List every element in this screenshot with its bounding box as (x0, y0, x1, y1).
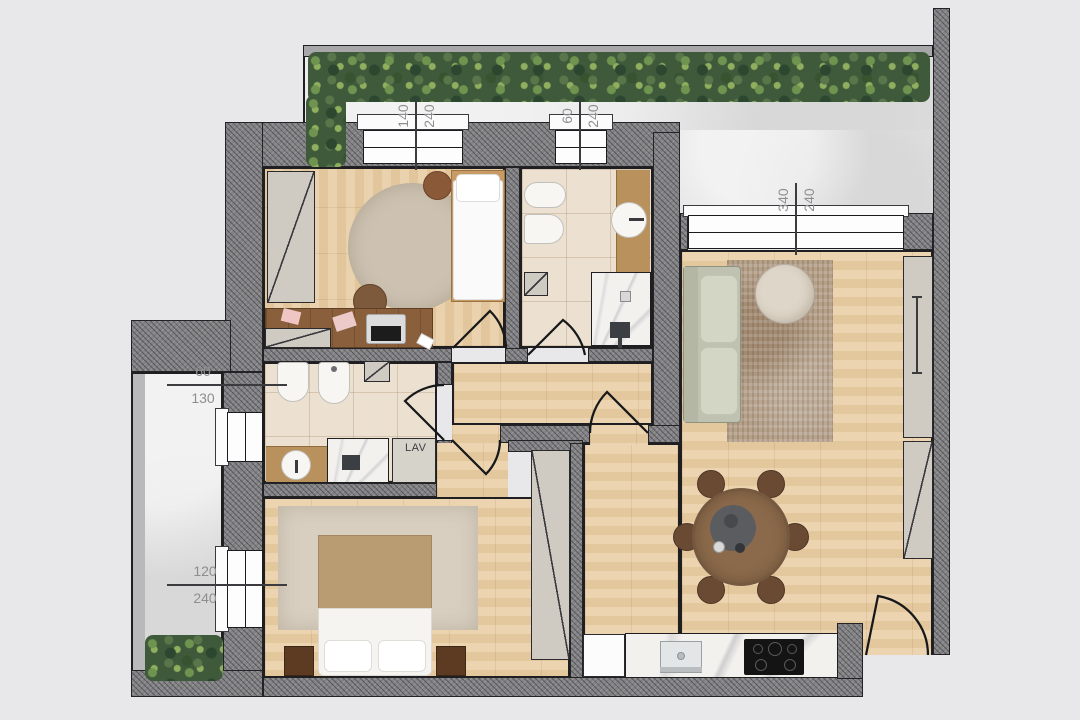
wall-bath2-east-a (437, 362, 452, 385)
kitchen-sink-drain (677, 652, 685, 660)
shower1-fixture (610, 322, 630, 338)
dim-master-width: 120 (185, 563, 225, 579)
dining-cup-3 (724, 514, 738, 528)
dim-bath2-height: 130 (183, 390, 223, 406)
bedroom1-desk-cabinet (265, 328, 331, 348)
burner-3 (787, 644, 797, 654)
master-wardrobe (531, 450, 570, 660)
sofa-cushion-top (700, 275, 738, 343)
kitchen-tall-cabinet (583, 634, 625, 677)
dim-living-height: 240 (801, 180, 817, 220)
burner-4 (755, 659, 767, 671)
window-bath2 (227, 412, 263, 462)
kitchen-sink-grate (660, 667, 702, 672)
corridor-floor-b (437, 443, 508, 499)
entry-closet (903, 441, 933, 559)
wall-entrance-jog (837, 623, 863, 679)
dim-master-height: 240 (185, 590, 225, 606)
wall-bottom (263, 676, 863, 697)
entrance-recess-mask (863, 655, 953, 700)
dim-line-master (167, 584, 287, 586)
kitchen-counter (625, 633, 838, 678)
balcony-edge-strip (133, 374, 145, 670)
bathroom2-cabinet (364, 361, 390, 382)
master-nightstand-right (436, 646, 466, 676)
burner-5 (784, 659, 796, 671)
bathroom2-toilet (277, 362, 309, 402)
bathroom1-cabinet (524, 272, 548, 296)
master-bed-pillow-right (378, 640, 426, 672)
dim-living-width: 340 (775, 180, 791, 220)
burner-1 (753, 644, 763, 654)
wall-hall-south-b (648, 425, 680, 443)
bathroom2-bidet-faucet (331, 366, 337, 372)
wall-right (933, 8, 950, 655)
wall-mid-vertical (653, 132, 680, 443)
washing-machine-label: LAV (405, 442, 435, 454)
corridor-floor-a (452, 425, 500, 445)
sofa-cushion-bottom (700, 347, 738, 415)
living-wardrobe (903, 256, 933, 438)
dim-bath2-width: 60 (183, 363, 223, 379)
wall-hall-north-b (505, 348, 528, 362)
bathroom1-toilet (524, 214, 564, 244)
coffee-table (755, 264, 815, 324)
shower2-fixture (342, 455, 360, 470)
wall-bath2-south (263, 483, 437, 497)
living-wardrobe-handle (916, 296, 918, 374)
dim-bedroom1-width: 140 (395, 96, 411, 136)
terrace-planter-corner (306, 95, 346, 167)
window-bedroom1-sill (357, 114, 469, 130)
wall-hall-north-a (263, 348, 452, 362)
bedroom1-bed-pillow (456, 174, 500, 202)
window-master (227, 550, 263, 628)
dim-line-bath2 (167, 384, 287, 386)
sofa (683, 266, 741, 423)
shower1-drain (620, 291, 631, 302)
dim-bedroom1-height: 240 (421, 96, 437, 136)
bathroom2-sink-faucet (295, 460, 298, 473)
hallway-floor (452, 362, 653, 425)
master-bed-blanket (318, 535, 432, 612)
balcony-planter (145, 635, 223, 681)
dim-line-bath1 (579, 98, 581, 170)
wall-hall-north-c (588, 348, 653, 362)
desk-laptop-screen (371, 326, 401, 341)
dim-bath1-width: 60 (559, 96, 575, 136)
living-wardrobe-handle-tick-bottom (912, 372, 922, 374)
sofa-back (684, 267, 698, 422)
floor-plan: LAV (0, 0, 1080, 720)
dim-line-bedroom1 (415, 98, 417, 170)
wall-living-north-right (903, 213, 933, 250)
wall-bedroom1-bath1 (505, 167, 520, 362)
bathroom1-bidet (524, 182, 566, 208)
dim-line-living (795, 183, 797, 255)
living-wardrobe-handle-tick-top (912, 296, 922, 298)
bathroom1-sink-faucet (629, 218, 644, 221)
living-doorway-floor (590, 425, 648, 445)
kitchen-cooktop (744, 639, 804, 675)
terrace-edge-line (303, 45, 305, 133)
wall-living-north-left (680, 213, 688, 250)
bedroom1-pouf (423, 171, 452, 200)
dining-cup-2 (735, 543, 745, 553)
bedroom1-wardrobe (267, 171, 315, 303)
master-nightstand-left (284, 646, 314, 676)
shower1-fixture-stem (618, 338, 622, 348)
master-bed-pillow-left (324, 640, 372, 672)
terrace-planter-strip (308, 52, 930, 102)
dim-bath1-height: 240 (585, 96, 601, 136)
wall-master-east (570, 443, 583, 678)
burner-2 (768, 642, 782, 656)
window-bedroom1 (363, 130, 463, 164)
dining-cup-1 (713, 541, 725, 553)
